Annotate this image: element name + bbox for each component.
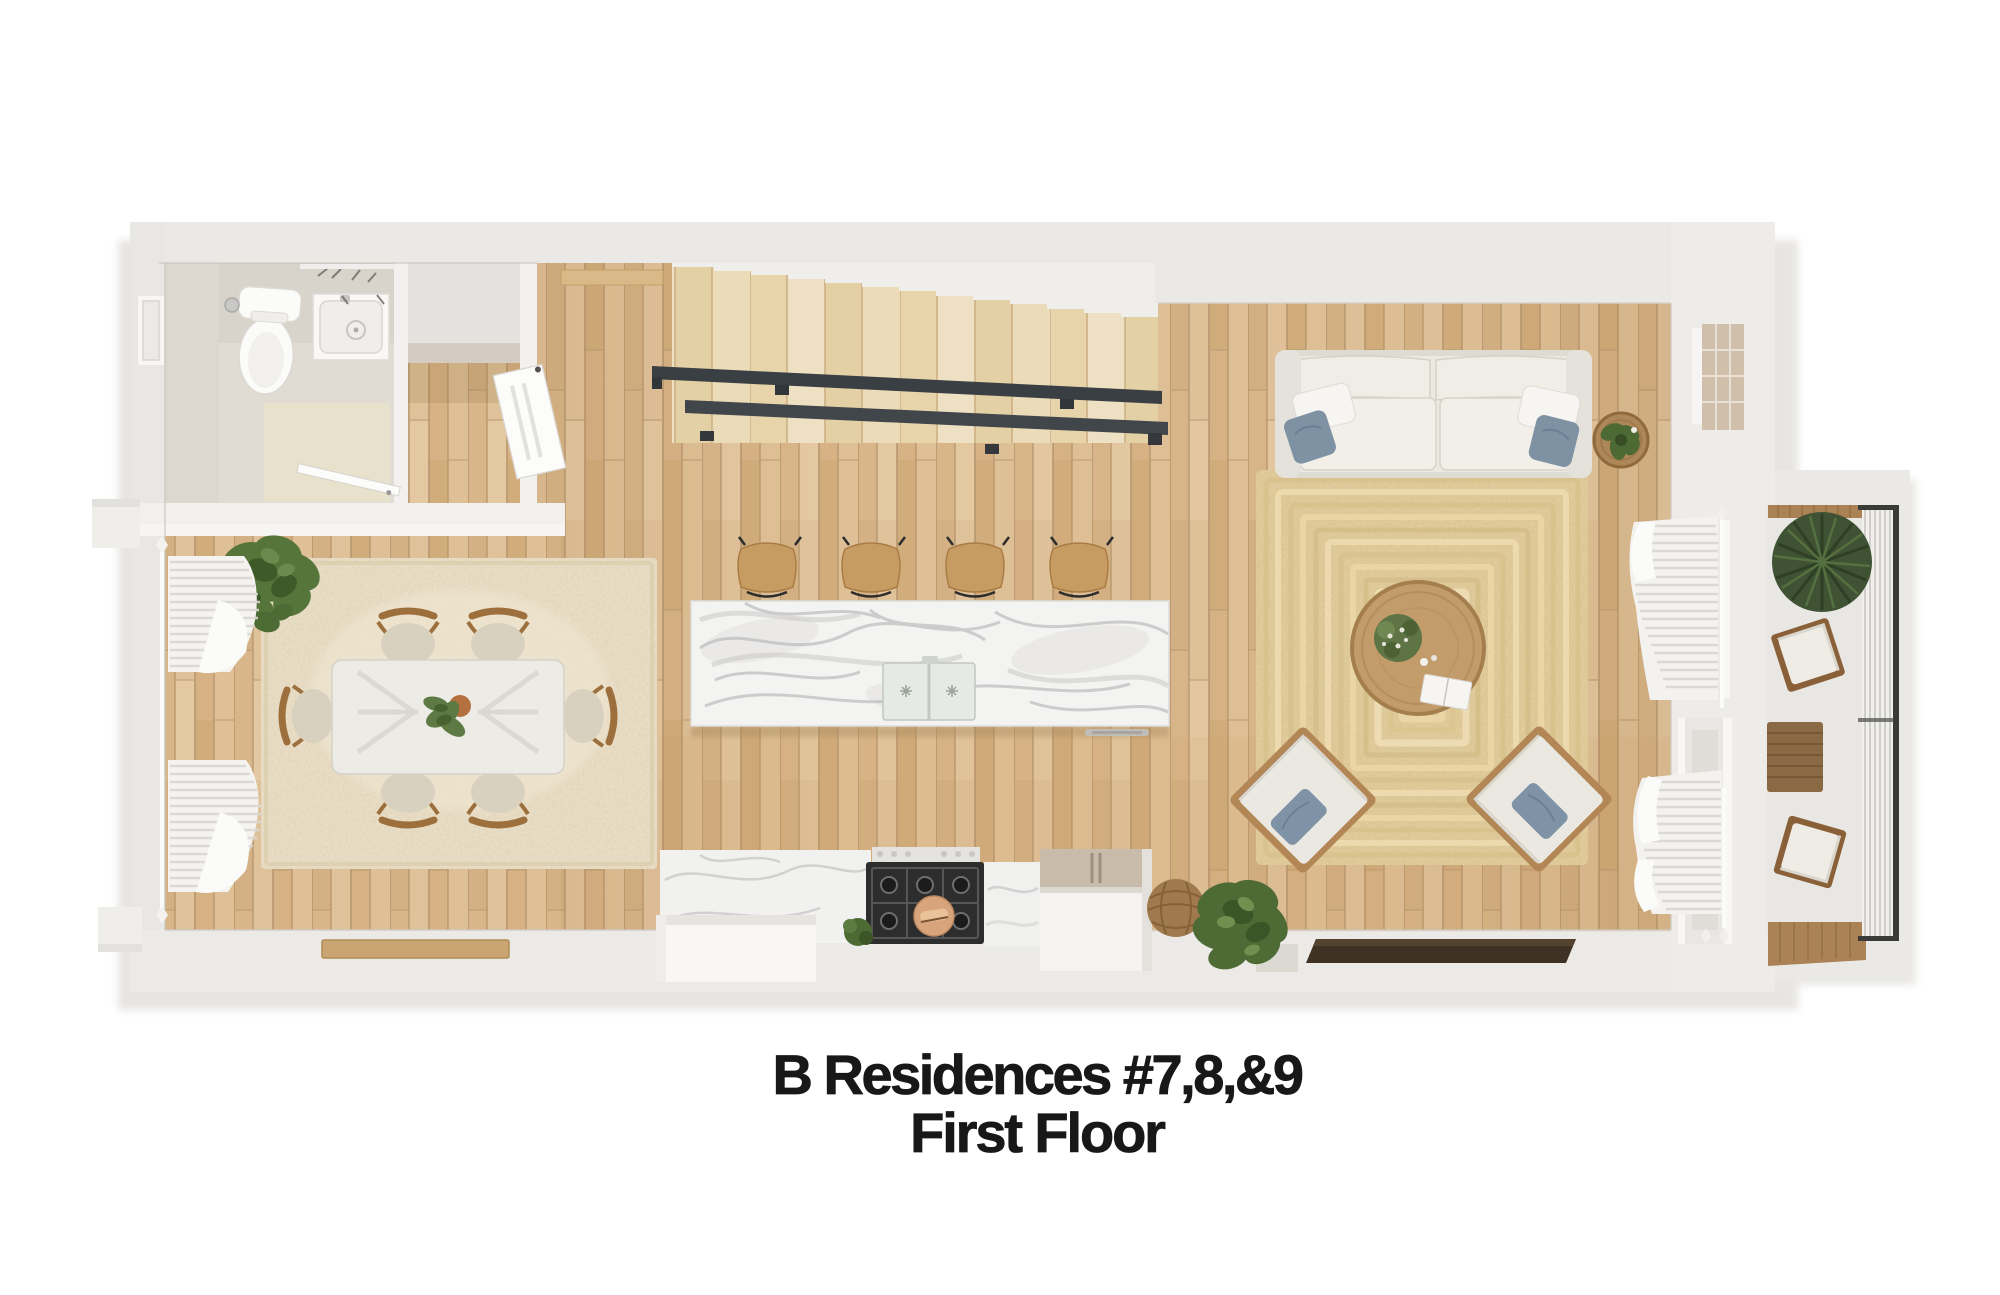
svg-text:B Residences #7,8,&9: B Residences #7,8,&9 bbox=[773, 1043, 1303, 1106]
svg-text:First Floor: First Floor bbox=[910, 1101, 1165, 1164]
